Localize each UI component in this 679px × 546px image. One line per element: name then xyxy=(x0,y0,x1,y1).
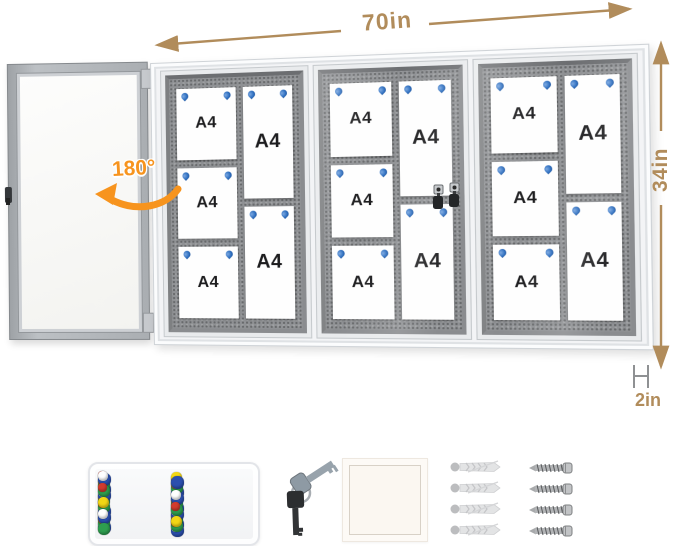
a4-label: A4 xyxy=(512,105,536,125)
push-pin-icon xyxy=(541,79,552,90)
push-pin-icon xyxy=(248,209,258,219)
screw-icon xyxy=(528,482,576,496)
a4-label: A4 xyxy=(414,250,442,273)
push-pin-icon xyxy=(380,248,391,258)
a4-label: A4 xyxy=(196,194,218,212)
push-pin-icon xyxy=(437,83,448,93)
felt-surface: A4A4A4A4A4 xyxy=(478,58,636,336)
push-pin-pile xyxy=(98,471,250,537)
door-swing-label: 180° xyxy=(111,156,156,182)
a4-label: A4 xyxy=(195,114,217,133)
wall-anchor-icon xyxy=(450,522,504,538)
a4-paper: A4 xyxy=(399,80,453,197)
a4-label: A4 xyxy=(412,126,440,150)
wall-anchor-set xyxy=(450,459,504,543)
a4-label: A4 xyxy=(197,274,219,292)
push-pin-icon xyxy=(405,207,416,217)
a4-label: A4 xyxy=(580,249,609,273)
screw-set xyxy=(528,461,576,545)
a4-paper: A4 xyxy=(242,85,293,198)
a4-label: A4 xyxy=(256,251,282,274)
push-pin-icon xyxy=(278,88,288,98)
push-pin-icon xyxy=(569,78,580,89)
board-section-right: A4A4A4A4A4 xyxy=(473,53,642,342)
push-pin-icon xyxy=(333,86,343,96)
a4-paper: A4 xyxy=(491,76,558,153)
felt-surface: A4A4A4A4A4 xyxy=(318,65,467,335)
push-pin xyxy=(98,497,109,508)
a4-paper: A4 xyxy=(244,206,295,319)
width-dimension-label: 70in xyxy=(341,5,433,38)
push-pin-icon xyxy=(181,171,191,181)
a4-label: A4 xyxy=(349,110,372,129)
push-pin-icon xyxy=(544,247,555,258)
felt-surface: A4A4A4A4A4 xyxy=(165,70,307,333)
wall-anchor-icon xyxy=(450,459,504,475)
a4-label: A4 xyxy=(255,131,281,154)
push-pin-icon xyxy=(570,205,581,216)
a4-paper: A4 xyxy=(564,74,621,194)
a4-paper: A4 xyxy=(176,87,236,160)
wall-anchor-icon xyxy=(450,480,504,496)
push-pin-icon xyxy=(438,207,449,217)
hinge-icon xyxy=(143,313,154,333)
wall-anchor-icon xyxy=(450,501,504,517)
a4-label: A4 xyxy=(352,273,375,292)
push-pin-icon xyxy=(497,248,508,259)
push-pin-icon xyxy=(222,90,232,100)
push-pin-icon xyxy=(280,209,290,219)
a4-paper: A4 xyxy=(493,245,560,321)
push-pin xyxy=(171,490,181,500)
open-door xyxy=(7,62,150,340)
push-pin-icon xyxy=(496,164,507,175)
a4-paper: A4 xyxy=(492,160,559,236)
push-pin-icon xyxy=(334,167,344,177)
door-glass xyxy=(16,71,143,333)
adhesive-pad xyxy=(342,458,428,542)
push-pin-icon xyxy=(495,81,506,92)
a4-paper: A4 xyxy=(330,164,393,238)
push-pin xyxy=(171,476,184,489)
notice-board: A4A4A4A4A4 A4A4A4A4A4 A4A4A4A4A4 xyxy=(150,44,654,351)
a4-paper: A4 xyxy=(177,167,237,239)
push-pin-icon xyxy=(335,249,345,259)
push-pin-icon xyxy=(180,91,190,101)
keys-icon xyxy=(262,452,354,544)
door-lock-icon xyxy=(5,187,12,203)
a4-paper: A4 xyxy=(178,247,238,319)
push-pin-icon xyxy=(543,163,554,174)
push-pin-icon xyxy=(246,89,256,99)
a4-label: A4 xyxy=(350,192,373,211)
push-pin-icon xyxy=(604,77,615,88)
push-pin-icon xyxy=(224,249,234,259)
depth-dimension-label: 2in xyxy=(618,390,678,411)
screw-icon xyxy=(528,461,576,475)
screw-icon xyxy=(528,524,576,538)
push-pin-icon xyxy=(606,205,617,216)
a4-label: A4 xyxy=(578,122,607,146)
height-dimension-label: 34in xyxy=(631,142,679,198)
push-pin-icon xyxy=(377,85,388,95)
width-arrow-left xyxy=(158,31,341,45)
push-pin-icon xyxy=(182,250,192,260)
push-pin xyxy=(98,471,108,481)
push-pin xyxy=(98,483,107,492)
push-pin-box xyxy=(88,462,260,546)
a4-label: A4 xyxy=(513,189,537,209)
push-pin-icon xyxy=(403,84,414,94)
width-arrow-right xyxy=(429,9,629,24)
product-image: A4A4A4A4A4 A4A4A4A4A4 A4A4A4A4A4 xyxy=(0,0,679,546)
push-pin xyxy=(171,502,180,511)
a4-label: A4 xyxy=(514,273,538,292)
screw-icon xyxy=(528,503,576,517)
push-pin-icon xyxy=(378,167,389,177)
push-pin xyxy=(98,523,110,535)
a4-paper: A4 xyxy=(566,202,623,321)
a4-paper: A4 xyxy=(332,246,395,320)
board-section-open: A4A4A4A4A4 xyxy=(160,65,312,338)
a4-paper: A4 xyxy=(401,204,455,320)
depth-bracket-icon xyxy=(634,365,648,388)
push-pin xyxy=(171,516,182,527)
a4-paper: A4 xyxy=(329,82,392,157)
board-section-middle: A4A4A4A4A4 xyxy=(312,59,472,340)
push-pin-icon xyxy=(223,170,233,180)
push-pin xyxy=(98,509,108,519)
